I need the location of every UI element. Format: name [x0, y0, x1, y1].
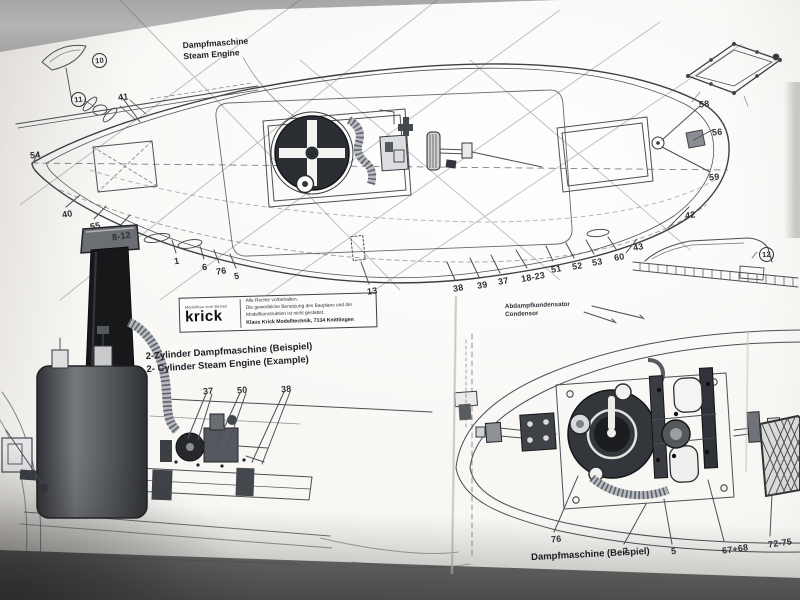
part-number-label: 76 [215, 265, 227, 276]
part-number-label: 41 [118, 91, 129, 102]
part-number-label: 38 [281, 384, 292, 395]
steam-engine-label: Dampfmaschine Steam Engine [182, 36, 249, 63]
part-number-label: 55 [89, 220, 101, 232]
part-number-label: 56 [712, 127, 723, 138]
circled-part-number-label: 11 [70, 91, 86, 107]
part-number-label: 5 [233, 271, 240, 282]
part-number-label: 59 [709, 172, 720, 183]
two-cylinder-label: 2-Zylinder Dampfmaschine (Beispiel) 2- C… [145, 341, 313, 377]
circled-part-number-label: 12 [758, 246, 774, 262]
part-number-label: 40 [61, 208, 73, 220]
part-number-label: 50 [237, 385, 248, 396]
circled-part-number-label: 10 [91, 52, 107, 68]
part-number-label: 67+68 [721, 542, 748, 556]
part-number-label: 39 [476, 279, 488, 291]
krick-logo-block: Modellbau vom Besten krick [185, 304, 236, 324]
condenser-label: Abdampfkondensator Condensor [505, 301, 571, 319]
part-number-label: 37 [203, 386, 214, 397]
part-number-label: 8-12 [111, 229, 131, 242]
part-number-label: 6 [201, 262, 208, 273]
part-number-label: 42 [684, 209, 696, 220]
part-number-label: 53 [591, 256, 603, 268]
part-number-label: 72-75 [767, 536, 792, 549]
part-number-label: 7 [622, 546, 628, 556]
part-number-label: 54 [30, 149, 41, 160]
stamp-legal-text: Alle Rechte vorbehalten. Die gewerbliche… [240, 296, 354, 328]
part-number-label: 37 [497, 275, 509, 287]
bottom-right-caption: Dampfmaschine (Beispiel) [531, 546, 650, 563]
part-number-label: 38 [452, 282, 464, 294]
krick-stamp: Modellbau vom Besten krick Alle Rechte v… [179, 292, 378, 332]
part-number-label: 52 [571, 260, 583, 272]
part-number-label: 18-23 [520, 270, 545, 284]
part-number-label: 43 [632, 241, 644, 253]
part-number-label: 1 [173, 256, 180, 267]
part-number-label: 13 [366, 285, 378, 296]
labels-layer: Dampfmaschine Steam Engine Modellbau vom… [0, 0, 800, 600]
part-number-label: 76 [551, 533, 562, 544]
condenser-label-en: Condensor [505, 309, 570, 319]
part-number-label: 5 [670, 546, 676, 556]
part-number-label: 60 [613, 251, 625, 263]
part-number-label: 51 [550, 263, 562, 275]
krick-logo: krick [185, 308, 235, 324]
part-number-label: 58 [699, 99, 710, 110]
photographed-plan-sheet: Dampfmaschine Steam Engine Modellbau vom… [0, 0, 800, 600]
